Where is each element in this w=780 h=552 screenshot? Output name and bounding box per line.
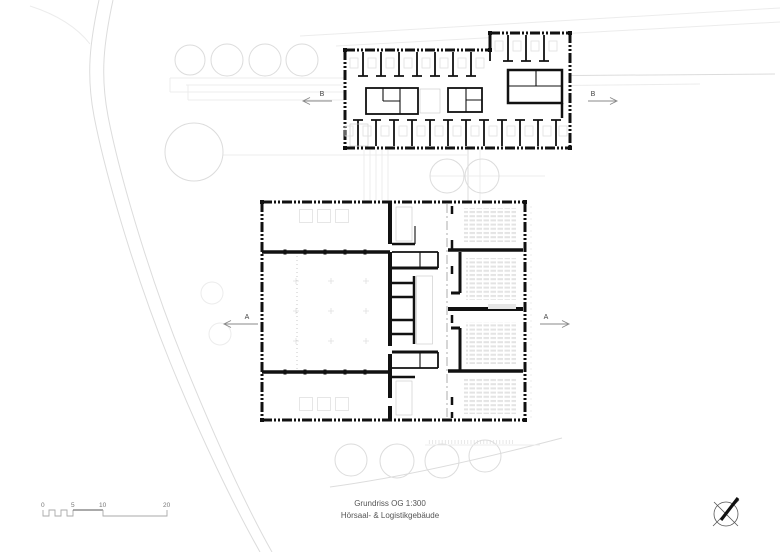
scale-tick-10: 10	[99, 502, 107, 509]
section-label: B	[591, 91, 596, 98]
section-marker-a-right: A	[540, 314, 569, 328]
lower-building-plan	[260, 200, 527, 422]
tree-row-upper	[175, 44, 318, 76]
section-marker-b-right: B	[588, 91, 617, 105]
scale-tick-5: 5	[71, 502, 75, 509]
scale-meander-0-5	[43, 510, 73, 516]
floor-plan-sheet: B B A A 0 5 10 20 Grundriss OG 1:300 Hör…	[0, 0, 780, 552]
upper-building-floor	[345, 50, 570, 148]
road-line	[104, 0, 272, 552]
road-edge	[30, 6, 90, 44]
podium-strip	[488, 304, 516, 309]
upper-building-floor-extension	[490, 33, 570, 50]
drawing-title-line2: Hörsaal- & Logistikgebäude	[341, 511, 440, 520]
drawing-title: Grundriss OG 1:300 Hörsaal- & Logistikge…	[341, 499, 440, 520]
road-line	[90, 0, 260, 552]
scale-segment-10-20	[103, 510, 167, 516]
section-label: B	[320, 91, 325, 98]
section-label: A	[245, 314, 250, 321]
scale-bar: 0 5 10 20	[41, 502, 171, 516]
scale-tick-0: 0	[41, 502, 45, 509]
section-label: A	[544, 314, 549, 321]
paving-ticks	[427, 439, 513, 444]
tree-circle	[201, 282, 223, 304]
large-tree-circle	[165, 123, 223, 181]
floor-plan-drawing: B B A A 0 5 10 20 Grundriss OG 1:300 Hör…	[0, 0, 780, 552]
section-marker-b-left: B	[303, 91, 332, 105]
connecting-path	[364, 150, 388, 200]
north-arrow-icon	[713, 498, 739, 526]
drawing-title-line1: Grundriss OG 1:300	[354, 499, 426, 508]
upper-building-plan	[343, 31, 572, 150]
section-marker-a-left: A	[224, 314, 258, 328]
scale-tick-20: 20	[163, 502, 171, 509]
